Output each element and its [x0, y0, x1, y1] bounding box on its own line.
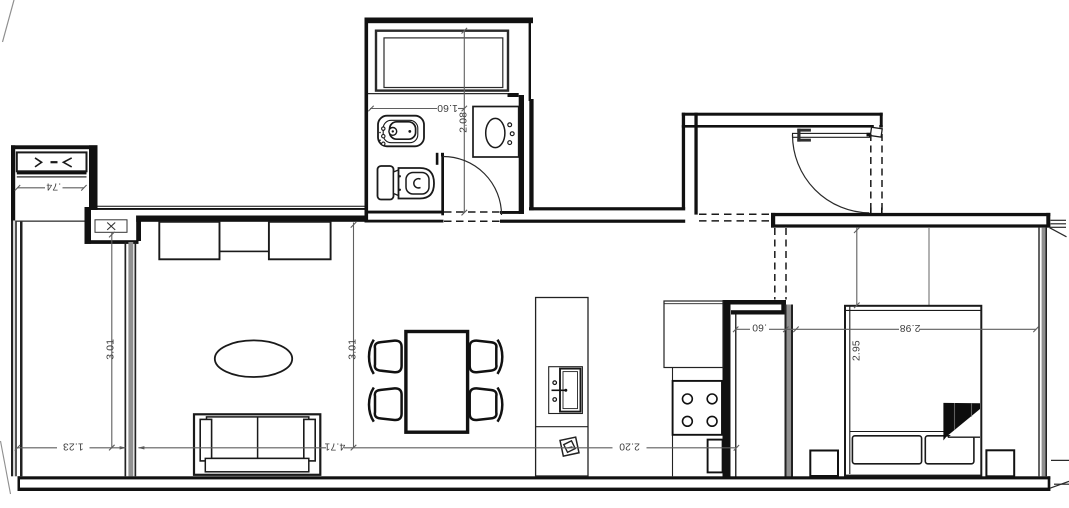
svg-text:2.98: 2.98	[900, 322, 921, 333]
svg-text:1.23: 1.23	[63, 441, 84, 452]
svg-text:2.95: 2.95	[851, 340, 862, 361]
svg-text:.60: .60	[752, 322, 767, 333]
svg-text:1.60: 1.60	[437, 102, 458, 113]
svg-text:4.71: 4.71	[324, 441, 345, 452]
svg-text:2.20: 2.20	[619, 440, 640, 451]
svg-text:3.01: 3.01	[106, 339, 117, 360]
svg-text:.74: .74	[46, 181, 61, 192]
svg-text:3.01: 3.01	[348, 339, 359, 360]
svg-text:2.08: 2.08	[459, 112, 470, 133]
